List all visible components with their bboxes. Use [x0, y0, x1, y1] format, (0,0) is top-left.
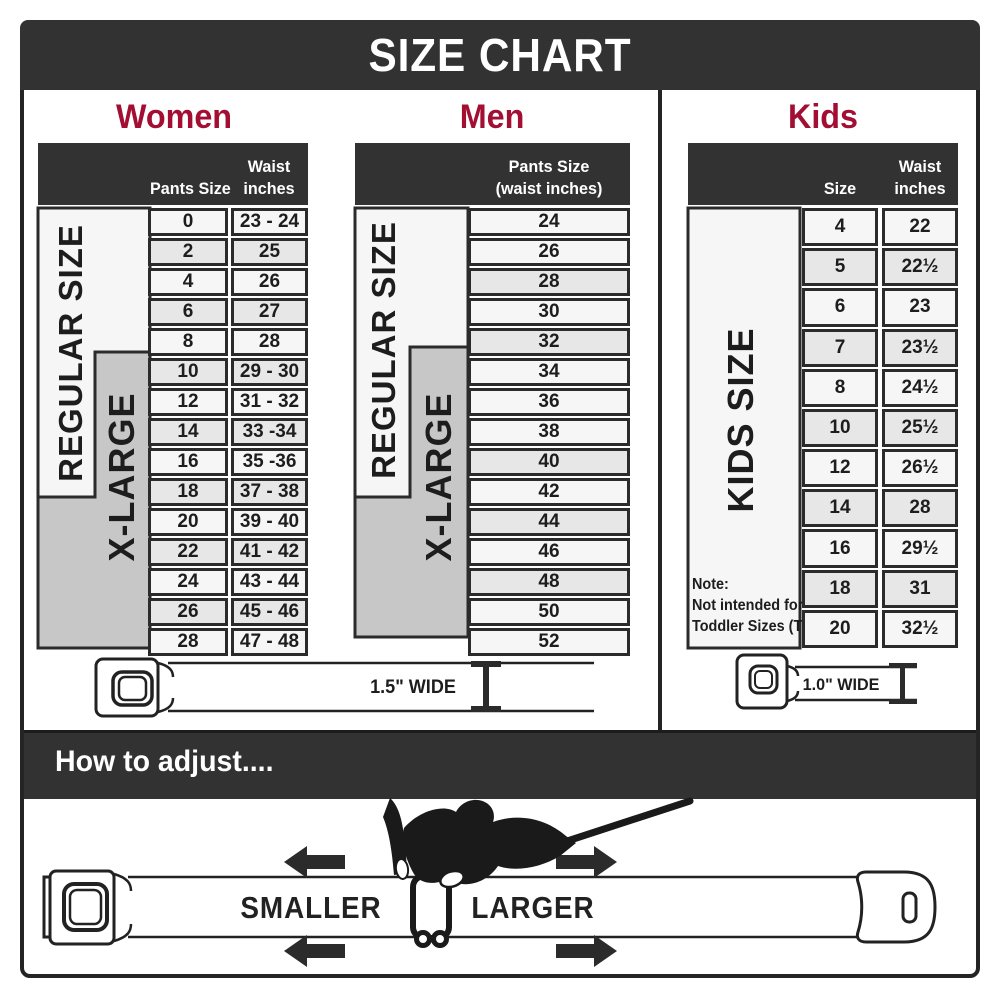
table-cell: 34 — [468, 358, 630, 386]
women-table: 023 - 242254266278281029 - 301231 - 3214… — [148, 208, 308, 648]
table-cell: 44 — [468, 508, 630, 536]
table-cell: 28 — [231, 328, 308, 356]
table-cell: 18 — [148, 478, 228, 506]
women-regular-size-label: REGULAR SIZE — [52, 224, 90, 482]
table-cell: 32½ — [882, 610, 958, 648]
table-cell: 18 — [802, 570, 878, 608]
table-cell: 28 — [468, 268, 630, 296]
table-cell: 7 — [802, 329, 878, 367]
table-cell: 4 — [802, 208, 878, 246]
table-cell: 20 — [802, 610, 878, 648]
table-cell: 37 - 38 — [231, 478, 308, 506]
table-cell: 52 — [468, 628, 630, 656]
how-to-adjust-title: How to adjust.... — [55, 745, 274, 779]
table-cell: 36 — [468, 388, 630, 416]
kids-table: 422522½623723½824½1025½1226½14281629½183… — [802, 208, 958, 648]
table-cell: 42 — [468, 478, 630, 506]
table-cell: 50 — [468, 598, 630, 626]
table-cell: 47 - 48 — [231, 628, 308, 656]
table-cell: 30 — [468, 298, 630, 326]
size-chart-infographic: { "banner": { "title": "SIZE CHART" }, "… — [0, 0, 1000, 1000]
table-cell: 20 — [148, 508, 228, 536]
kids-col-waist: Waist inches — [884, 156, 956, 200]
larger-label: LARGER — [471, 890, 594, 926]
table-cell: 6 — [148, 298, 228, 326]
men-xlarge-label: X-LARGE — [418, 393, 460, 562]
table-cell: 5 — [802, 248, 878, 286]
table-cell: 39 - 40 — [231, 508, 308, 536]
table-cell: 10 — [802, 409, 878, 447]
table-cell: 22 — [148, 538, 228, 566]
table-cell: 24½ — [882, 369, 958, 407]
table-cell: 38 — [468, 418, 630, 446]
table-cell: 12 — [148, 388, 228, 416]
table-cell: 22 — [882, 208, 958, 246]
table-cell: 16 — [802, 529, 878, 567]
table-cell: 26 — [468, 238, 630, 266]
table-cell: 10 — [148, 358, 228, 386]
table-cell: 46 — [468, 538, 630, 566]
table-cell: 32 — [468, 328, 630, 356]
table-cell: 22½ — [882, 248, 958, 286]
table-cell: 26 — [231, 268, 308, 296]
table-cell: 24 — [468, 208, 630, 236]
table-cell: 4 — [148, 268, 228, 296]
adult-belt-width-label: 1.5" WIDE — [370, 677, 456, 699]
men-regular-size-label: REGULAR SIZE — [365, 221, 403, 479]
table-cell: 0 — [148, 208, 228, 236]
table-cell: 23 — [882, 288, 958, 326]
table-cell: 23 - 24 — [231, 208, 308, 236]
table-cell: 43 - 44 — [231, 568, 308, 596]
table-cell: 29½ — [882, 529, 958, 567]
title-banner: SIZE CHART — [20, 20, 980, 90]
kids-note: Note: Not intended for Toddler Sizes (T) — [692, 574, 807, 637]
table-cell: 40 — [468, 448, 630, 476]
kids-col-size: Size — [804, 178, 876, 200]
kids-belt-width-label: 1.0" WIDE — [803, 675, 880, 695]
table-cell: 26½ — [882, 449, 958, 487]
kids-size-label: KIDS SIZE — [720, 327, 762, 512]
table-cell: 31 — [882, 570, 958, 608]
table-cell: 33 -34 — [231, 418, 308, 446]
smaller-label: SMALLER — [240, 890, 381, 926]
table-cell: 29 - 30 — [231, 358, 308, 386]
table-cell: 45 - 46 — [231, 598, 308, 626]
men-section-title: Men — [460, 98, 525, 137]
women-xlarge-label: X-LARGE — [101, 393, 143, 562]
table-cell: 28 — [882, 489, 958, 527]
women-col-pants-size: Pants Size — [150, 178, 226, 200]
page-title: SIZE CHART — [368, 28, 631, 82]
table-cell: 8 — [148, 328, 228, 356]
men-col-pants-size: Pants Size (waist inches) — [472, 156, 626, 200]
table-cell: 25½ — [882, 409, 958, 447]
table-cell: 8 — [802, 369, 878, 407]
table-cell: 25 — [231, 238, 308, 266]
table-cell: 6 — [802, 288, 878, 326]
kids-section-title: Kids — [788, 98, 858, 137]
table-cell: 31 - 32 — [231, 388, 308, 416]
table-cell: 28 — [148, 628, 228, 656]
table-cell: 26 — [148, 598, 228, 626]
table-cell: 35 -36 — [231, 448, 308, 476]
table-cell: 2 — [148, 238, 228, 266]
table-cell: 24 — [148, 568, 228, 596]
men-table: 242628303234363840424446485052 — [468, 208, 630, 637]
table-cell: 48 — [468, 568, 630, 596]
table-cell: 14 — [148, 418, 228, 446]
women-col-waist: Waist inches — [232, 156, 306, 200]
table-cell: 16 — [148, 448, 228, 476]
kids-section-divider — [658, 90, 662, 733]
table-cell: 41 - 42 — [231, 538, 308, 566]
table-cell: 14 — [802, 489, 878, 527]
table-cell: 23½ — [882, 329, 958, 367]
table-cell: 27 — [231, 298, 308, 326]
table-cell: 12 — [802, 449, 878, 487]
women-section-title: Women — [116, 98, 232, 137]
